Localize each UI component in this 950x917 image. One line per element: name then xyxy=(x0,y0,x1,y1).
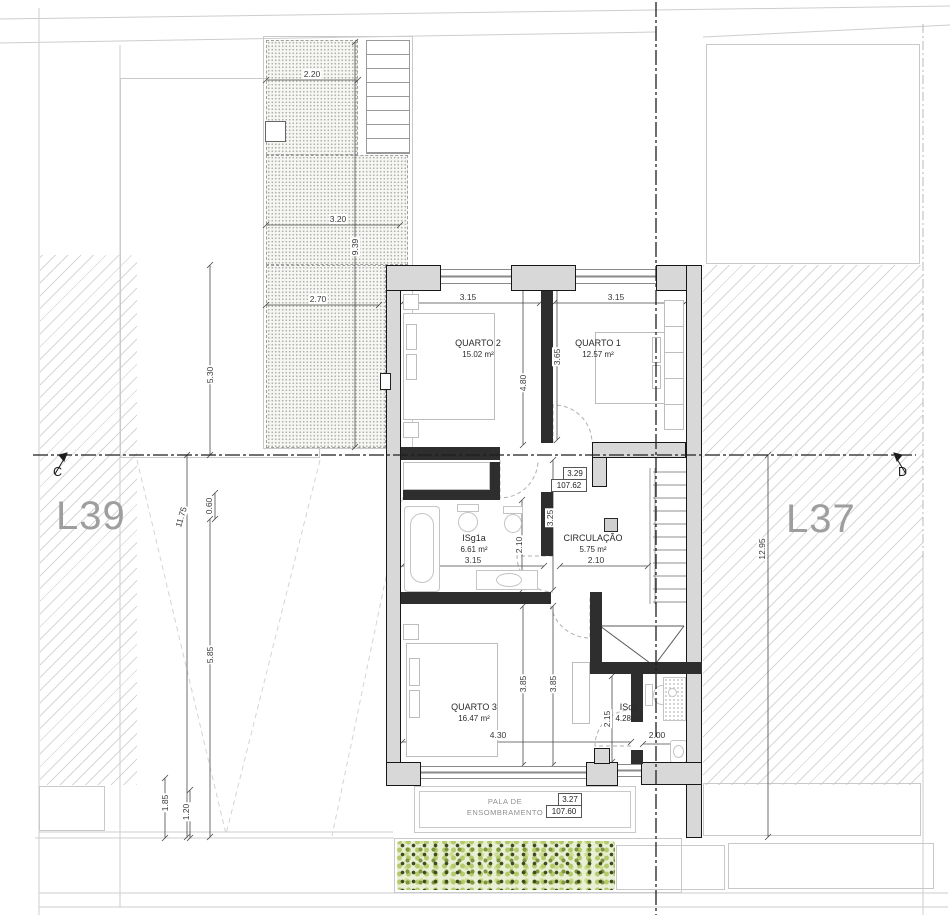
partition xyxy=(401,447,500,460)
dimension-label-right_depth: 12.95 xyxy=(757,537,767,560)
level-absolute: 107.62 xyxy=(551,479,587,492)
duct-shaft xyxy=(604,518,618,532)
room-name: CIRCULAÇÃO xyxy=(538,533,648,545)
pillow xyxy=(406,354,417,380)
skylight-square xyxy=(265,121,286,142)
dimension-label-plot_left_inner: 1.20 xyxy=(181,803,191,822)
room-name: ISq3 xyxy=(574,702,684,714)
level-marker-upper: 3.29 107.62 xyxy=(551,467,587,492)
floor-plan: QUARTO 2 15.02 m² QUARTO 1 12.57 m² ISg1… xyxy=(0,0,950,917)
window-small xyxy=(380,373,391,390)
dimension-label-left_total: 11.75 xyxy=(173,505,189,530)
dimension-label-plot_left_depth: 1.85 xyxy=(160,794,170,813)
wall xyxy=(586,762,618,786)
neighbour-courtyard-right-outline xyxy=(706,44,920,264)
room-label-quarto3: QUARTO 3 16.47 m² xyxy=(419,702,529,724)
dimension-label-isg1a_depth: 2.10 xyxy=(514,536,524,555)
pillow xyxy=(409,658,420,686)
window xyxy=(576,269,656,284)
room-area: 4.28 m² xyxy=(574,714,684,724)
exterior-stair xyxy=(366,40,410,154)
planter-outline-right xyxy=(616,845,725,890)
hedge-plants xyxy=(397,841,615,890)
section-label-d: D xyxy=(898,465,907,479)
room-area: 16.47 m² xyxy=(419,714,529,724)
window xyxy=(441,269,511,284)
wall xyxy=(386,762,421,786)
stair-treads xyxy=(650,468,686,604)
wall xyxy=(511,265,576,291)
section-label-c: C xyxy=(53,465,62,479)
room-area: 6.61 m² xyxy=(419,545,529,555)
terrace-gravel-side xyxy=(266,265,386,448)
partition xyxy=(490,462,500,500)
partition xyxy=(403,490,500,500)
toilet-bowl xyxy=(458,512,478,532)
room-name: QUARTO 2 xyxy=(423,338,533,350)
partition xyxy=(541,291,553,443)
room-name: ISg1a xyxy=(419,533,529,545)
patio-outline-right-lower xyxy=(728,843,934,889)
wall xyxy=(592,442,686,458)
pillow xyxy=(652,337,661,363)
patio-outline-right-upper xyxy=(703,783,921,836)
dimension-label-q3_depth_b: 3.85 xyxy=(548,675,558,694)
dimension-label-terrace_bottom_width: 2.70 xyxy=(309,294,328,304)
pillow xyxy=(652,365,661,389)
sink-isq3-bowl xyxy=(673,745,684,758)
toilet-tank xyxy=(457,504,479,512)
lot-label-left: L39 xyxy=(56,494,126,539)
room-area: 5.75 m² xyxy=(538,545,648,555)
dimension-label-isg1a_width: 3.15 xyxy=(464,555,483,565)
wall xyxy=(641,762,702,785)
dimension-label-q2_width: 3.15 xyxy=(459,292,478,302)
room-label-circulacao: CIRCULAÇÃO 5.75 m² xyxy=(538,533,648,555)
dimension-label-isq3_width: 2.00 xyxy=(648,730,667,740)
wall xyxy=(386,265,441,291)
partition xyxy=(590,662,702,674)
dimension-label-terrace_top_width: 2.20 xyxy=(303,69,322,79)
terrace-gravel-mid xyxy=(266,155,408,265)
dimension-label-terrace_mid_width: 3.20 xyxy=(329,214,348,224)
nightstand xyxy=(403,624,419,640)
dimension-label-q1_width: 3.15 xyxy=(607,292,626,302)
wall xyxy=(386,265,401,786)
bidet-bowl xyxy=(504,514,522,533)
room-area: 15.02 m² xyxy=(423,350,533,360)
dimension-label-left_upper: 5.30 xyxy=(205,366,215,385)
wardrobe-quarto1 xyxy=(664,300,684,430)
dimension-label-left_lower: 5.85 xyxy=(205,646,215,665)
partition xyxy=(590,592,602,668)
pillow xyxy=(406,324,417,350)
nightstand xyxy=(403,422,419,438)
dimension-label-q3_depth_a: 3.85 xyxy=(518,675,528,694)
shower-drain xyxy=(668,688,677,697)
dimension-label-left_small: 0.60 xyxy=(204,497,214,516)
wall xyxy=(592,457,607,487)
level-absolute: 107.60 xyxy=(546,805,582,818)
level-marker-lower: 3.27 107.60 xyxy=(546,793,582,818)
dimension-label-q1_depth: 3.65 xyxy=(552,348,562,367)
nightstand xyxy=(403,294,419,310)
dimension-label-hall_depth: 3.25 xyxy=(545,509,555,528)
dimension-label-isq3_depth: 2.15 xyxy=(602,710,612,729)
partition xyxy=(401,592,551,604)
room-label-isg1a: ISg1a 6.61 m² xyxy=(419,533,529,555)
level-relative: 3.27 xyxy=(558,793,582,805)
wall xyxy=(594,748,610,764)
dimension-label-terrace_height: 9.39 xyxy=(350,238,360,257)
stair-flight-lines xyxy=(600,626,684,666)
lot-label-right: L37 xyxy=(786,497,856,542)
vanity-sink xyxy=(496,573,522,587)
room-name: QUARTO 3 xyxy=(419,702,529,714)
wall xyxy=(686,265,702,838)
bidet-tank xyxy=(503,506,523,514)
window xyxy=(618,764,641,777)
window-sliding xyxy=(421,766,586,779)
dimension-label-q3_width: 4.30 xyxy=(489,730,508,740)
closet-quarto2 xyxy=(403,462,490,490)
dimension-label-q2_depth: 4.80 xyxy=(518,374,528,393)
level-relative: 3.29 xyxy=(563,467,587,479)
room-label-quarto2: QUARTO 2 15.02 m² xyxy=(423,338,533,360)
partition xyxy=(631,750,643,764)
room-label-isq3: ISq3 4.28 m² xyxy=(574,702,684,724)
patio-outline-left xyxy=(39,786,105,831)
dimension-label-circ_width: 2.10 xyxy=(587,555,606,565)
